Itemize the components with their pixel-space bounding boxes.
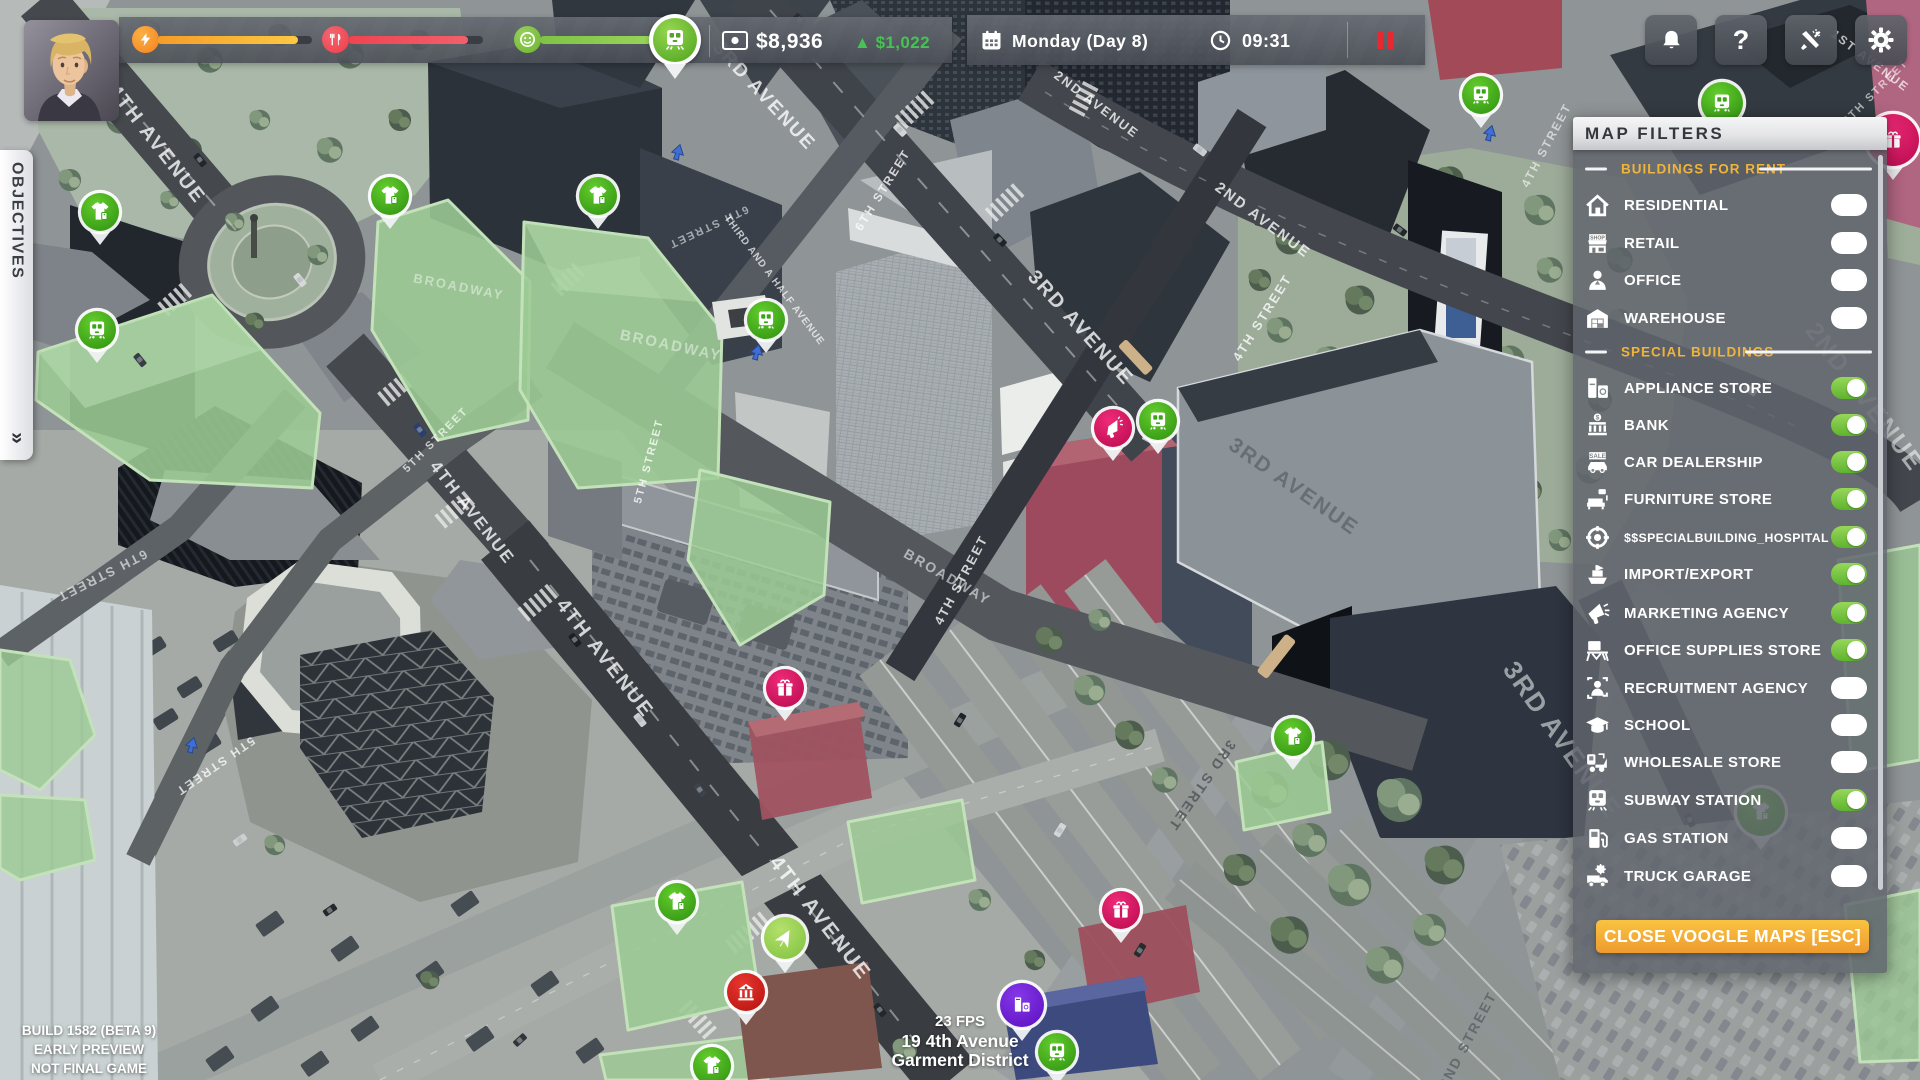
svg-text:$: $	[1596, 414, 1600, 421]
svg-text:SHOP: SHOP	[1590, 235, 1605, 241]
svg-text:SALE: SALE	[1589, 452, 1606, 459]
